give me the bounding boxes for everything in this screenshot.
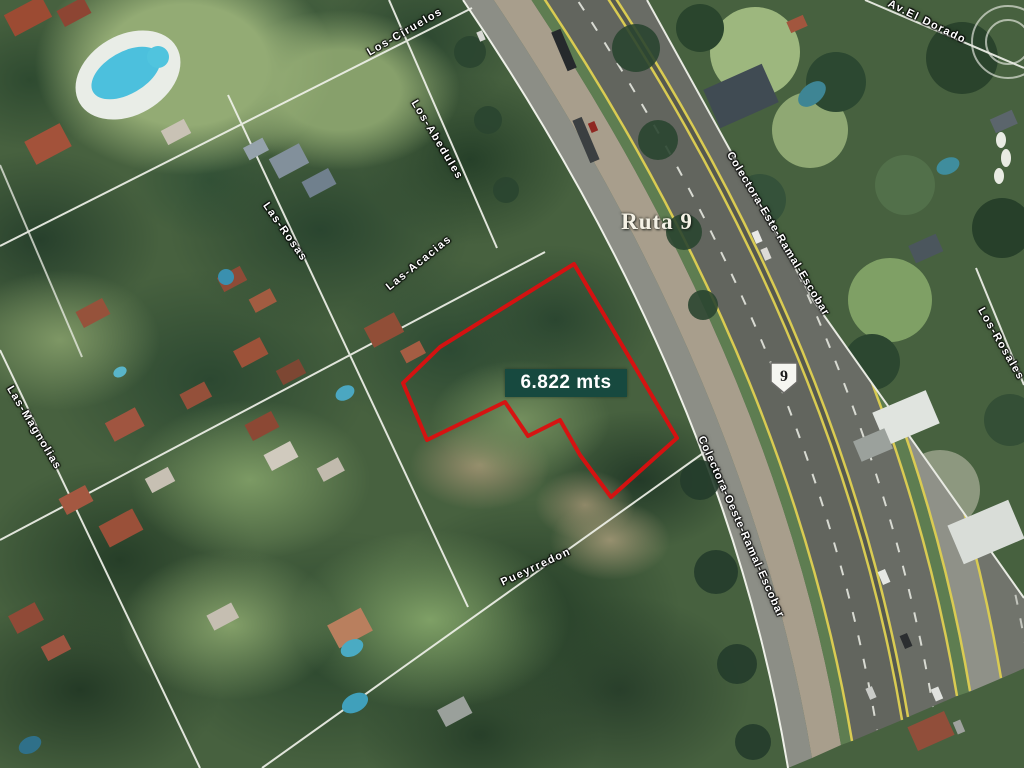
- parcel-area-label: 6.822 mts: [505, 369, 627, 397]
- car: [953, 719, 965, 734]
- route-shield-number: 9: [780, 368, 788, 385]
- street-line-pueyrredon: [262, 449, 709, 768]
- highway-name-label: Ruta 9: [621, 209, 693, 235]
- street-line-los-ciruelos: [0, 8, 472, 246]
- route-9-shield: 9: [769, 361, 799, 400]
- satellite-map: Los-Ciruelos Los-Abedules Las-Rosas Las-…: [0, 0, 1024, 768]
- parcel-boundary-line: [0, 165, 82, 357]
